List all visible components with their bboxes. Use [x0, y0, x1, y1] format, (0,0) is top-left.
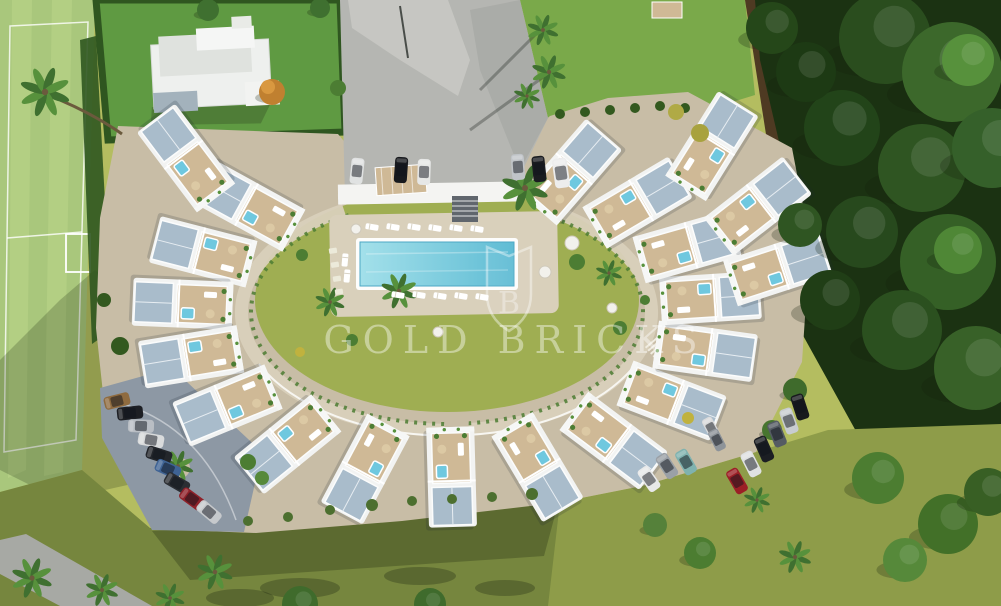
- tree-highlight: [952, 233, 974, 255]
- watermark-text: GOLD BRICKS: [323, 318, 706, 362]
- watermark-logo-letter: B: [498, 286, 520, 321]
- parked-car: [116, 405, 143, 421]
- tree: [330, 80, 346, 96]
- tree: [243, 516, 253, 526]
- tree: [447, 494, 457, 504]
- tree-highlight: [874, 6, 915, 47]
- tree: [580, 107, 590, 117]
- tree: [97, 293, 111, 307]
- entrance-wall: [338, 181, 520, 204]
- parked-car: [394, 157, 409, 184]
- tree: [682, 412, 694, 424]
- villa-roof-parapet: [196, 26, 255, 51]
- tree: [555, 109, 565, 119]
- tree-highlight: [823, 279, 850, 306]
- stepping-stone: [331, 261, 340, 268]
- parked-car: [531, 155, 547, 182]
- tree: [283, 512, 293, 522]
- parked-car: [128, 419, 154, 433]
- tree-highlight: [766, 10, 789, 33]
- townhouse-roof-module: [423, 426, 477, 530]
- stepping-stone: [333, 275, 342, 282]
- villa-plot: [96, 0, 345, 140]
- tree: [255, 471, 269, 485]
- round-table: [565, 236, 579, 250]
- sun-lounger: [341, 253, 348, 266]
- aerial-render: B GOLD BRICKS: [0, 0, 1001, 606]
- tree: [655, 101, 665, 111]
- tree: [526, 488, 538, 500]
- sun-lounger: [343, 269, 350, 282]
- tree-highlight: [833, 101, 867, 135]
- stepping-stone: [329, 247, 338, 254]
- tree: [111, 337, 129, 355]
- tree: [295, 347, 305, 357]
- tree: [630, 103, 640, 113]
- tree: [691, 124, 709, 142]
- tree-shadow: [384, 567, 456, 585]
- tree: [366, 499, 378, 511]
- tree-highlight: [962, 42, 985, 65]
- parked-car: [349, 157, 365, 184]
- tree-shadow: [475, 580, 535, 596]
- tree: [487, 492, 497, 502]
- parked-car: [511, 154, 526, 181]
- villa-roof-block: [231, 16, 252, 29]
- tree: [197, 0, 219, 21]
- round-table: [539, 266, 551, 278]
- round-table: [607, 303, 617, 313]
- parked-car: [417, 159, 431, 185]
- tree: [261, 80, 275, 94]
- entrance-stairs: [452, 196, 478, 222]
- tree: [407, 496, 417, 506]
- tree: [569, 254, 585, 270]
- round-table: [351, 224, 361, 234]
- tree: [296, 249, 308, 261]
- aerial-render-canvas: B GOLD BRICKS: [0, 0, 1001, 606]
- garden-pergola: [652, 2, 682, 18]
- tree: [640, 295, 650, 305]
- tree-highlight: [872, 460, 895, 483]
- townhouse-roof-module: [129, 275, 234, 330]
- tree-highlight: [900, 545, 920, 565]
- tree: [643, 513, 667, 537]
- tree: [325, 505, 335, 515]
- tree: [605, 105, 615, 115]
- tree: [668, 104, 684, 120]
- tree-highlight: [795, 210, 815, 230]
- tree-highlight: [892, 302, 928, 338]
- tree: [240, 454, 256, 470]
- tree-highlight: [799, 51, 826, 78]
- tree-highlight: [696, 542, 710, 556]
- tree-highlight: [853, 207, 885, 239]
- stepping-stone: [335, 288, 344, 295]
